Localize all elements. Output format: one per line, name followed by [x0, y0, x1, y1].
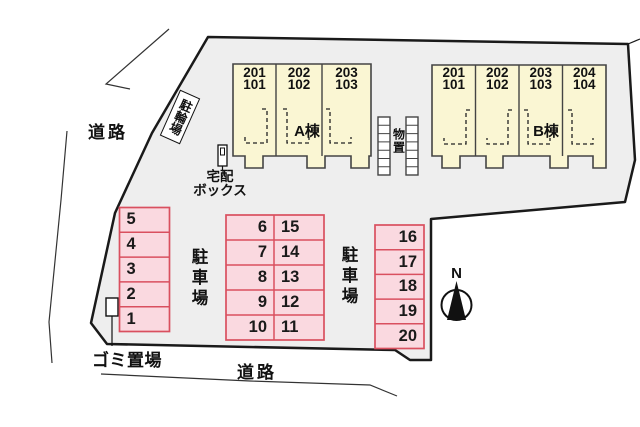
unit-lower-number: 101 — [233, 79, 276, 91]
parking-space-19: 19 — [375, 299, 424, 324]
parking-lot-label-left: 駐車場 — [186, 248, 210, 310]
delivery-box-label-line1: 宅配 — [186, 170, 254, 184]
parking-space-7: 7 — [226, 240, 274, 265]
unit-lower-number: 103 — [322, 79, 371, 91]
parking-space-18: 18 — [375, 274, 424, 299]
parking-space-6: 6 — [226, 215, 274, 240]
unit-lower-number: 102 — [276, 79, 322, 91]
parking-space-3: 3 — [120, 257, 170, 282]
building-b-unit-2-label: 202 102 — [476, 67, 520, 91]
unit-lower-number: 101 — [432, 79, 476, 91]
parking-space-20: 20 — [375, 324, 424, 349]
road-edge-top-left — [106, 29, 169, 89]
delivery-box-label: 宅配 ボックス — [186, 170, 254, 197]
road-label-left: 道路 — [88, 118, 128, 143]
parking-space-4: 4 — [120, 232, 170, 257]
parking-lot-label-right: 駐車場 — [336, 246, 360, 308]
parking-space-12: 12 — [274, 290, 324, 315]
unit-lower-number: 104 — [563, 79, 607, 91]
parking-space-5: 5 — [120, 208, 170, 233]
garbage-area-icon — [106, 298, 118, 316]
unit-lower-number: 102 — [476, 79, 520, 91]
unit-lower-number: 103 — [519, 79, 563, 91]
parking-space-14: 14 — [274, 240, 324, 265]
parking-space-9: 9 — [226, 290, 274, 315]
road-label-bottom: 道路 — [237, 358, 277, 383]
parking-space-8: 8 — [226, 265, 274, 290]
storage-label: 物置 — [391, 128, 408, 154]
building-a-unit-2-label: 202 102 — [276, 67, 322, 91]
boundary-tick-top-right — [628, 39, 640, 44]
garbage-area-label: ゴミ置場 — [92, 346, 162, 371]
parking-space-13: 13 — [274, 265, 324, 290]
building-b-unit-4-label: 204 104 — [563, 67, 607, 91]
parking-space-1: 1 — [120, 307, 170, 332]
building-b-unit-1-label: 201 101 — [432, 67, 476, 91]
road-edge-left — [49, 131, 67, 363]
building-a-unit-1-label: 201 101 — [233, 67, 276, 91]
building-a-name: A棟 — [284, 120, 330, 141]
building-b-unit-3-label: 203 103 — [519, 67, 563, 91]
parking-space-10: 10 — [226, 315, 274, 340]
parking-space-11: 11 — [274, 315, 324, 340]
north-label: N — [444, 265, 469, 282]
parking-space-2: 2 — [120, 282, 170, 307]
site-plan: 道路 道路 駐輪場 宅配 ボックス ゴミ置場 物置 駐車場 駐車場 N 201 … — [0, 0, 640, 427]
parking-space-15: 15 — [274, 215, 324, 240]
parking-space-16: 16 — [375, 225, 424, 250]
delivery-box-label-line2: ボックス — [186, 184, 254, 198]
building-a-unit-3-label: 203 103 — [322, 67, 371, 91]
parking-space-17: 17 — [375, 250, 424, 275]
building-b-name: B棟 — [523, 120, 569, 141]
